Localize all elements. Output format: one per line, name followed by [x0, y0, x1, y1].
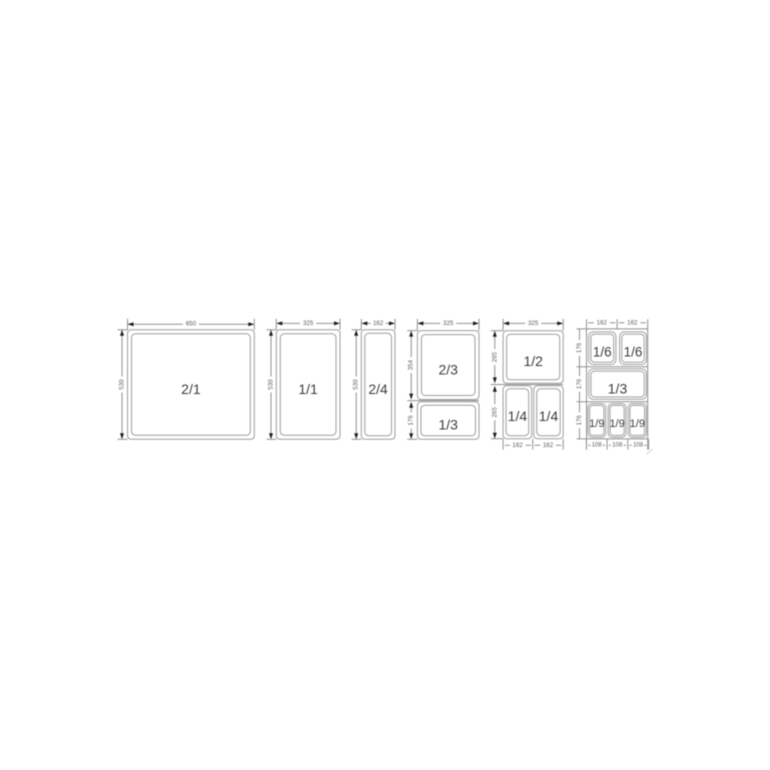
svg-text:1/1: 1/1 — [298, 381, 318, 397]
svg-text:530: 530 — [268, 379, 275, 390]
svg-text:354: 354 — [408, 359, 415, 370]
svg-text:2/1: 2/1 — [181, 381, 201, 397]
svg-text:325: 325 — [528, 320, 539, 327]
svg-text:108: 108 — [612, 442, 623, 448]
svg-text:162: 162 — [512, 442, 523, 449]
svg-text:176: 176 — [576, 415, 583, 426]
svg-text:108: 108 — [633, 442, 644, 448]
svg-text:265: 265 — [491, 351, 498, 362]
svg-text:2/4: 2/4 — [368, 381, 388, 397]
svg-text:162: 162 — [597, 319, 608, 326]
svg-text:1/4: 1/4 — [508, 408, 528, 424]
svg-text:1/9: 1/9 — [589, 418, 604, 430]
svg-text:1/3: 1/3 — [608, 380, 628, 396]
svg-text:325: 325 — [443, 320, 454, 327]
svg-text:1/2: 1/2 — [523, 353, 543, 369]
svg-text:162: 162 — [627, 319, 638, 326]
svg-text:176: 176 — [576, 378, 583, 389]
svg-text:162: 162 — [373, 320, 384, 327]
svg-text:1/4: 1/4 — [539, 408, 559, 424]
svg-text:176: 176 — [408, 415, 415, 426]
svg-text:108: 108 — [592, 442, 603, 448]
svg-text:1/9: 1/9 — [609, 418, 624, 430]
svg-text:1/3: 1/3 — [438, 416, 458, 432]
svg-text:1/6: 1/6 — [624, 344, 643, 359]
svg-text:1/6: 1/6 — [593, 344, 612, 359]
svg-text:325: 325 — [303, 320, 314, 327]
svg-text:530: 530 — [119, 379, 126, 390]
svg-text:650: 650 — [186, 321, 197, 328]
svg-text:265: 265 — [491, 407, 498, 418]
svg-text:2/3: 2/3 — [438, 362, 458, 378]
svg-text:176: 176 — [576, 342, 583, 353]
svg-text:1/9: 1/9 — [630, 418, 645, 430]
svg-text:162: 162 — [543, 442, 554, 449]
svg-text:530: 530 — [353, 379, 360, 390]
